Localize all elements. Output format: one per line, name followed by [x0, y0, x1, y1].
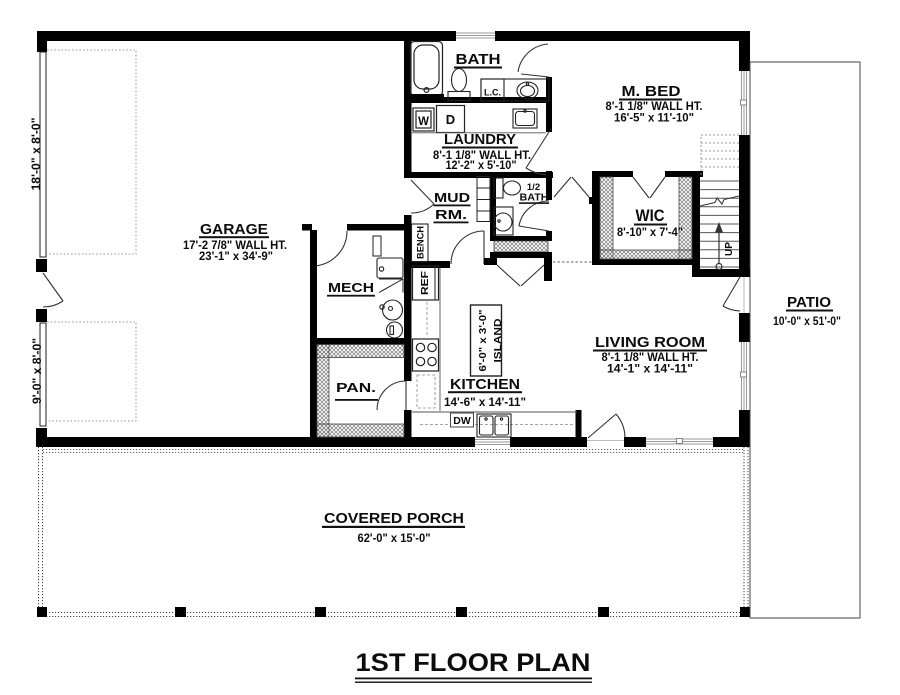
- svg-text:KITCHEN: KITCHEN: [450, 377, 520, 393]
- svg-text:1/2: 1/2: [527, 182, 540, 193]
- svg-text:COVERED PORCH: COVERED PORCH: [324, 511, 464, 527]
- svg-text:UP: UP: [724, 242, 735, 256]
- svg-text:10'-0" x 51'-0": 10'-0" x 51'-0": [773, 316, 841, 328]
- svg-text:BATH: BATH: [456, 52, 501, 68]
- svg-text:REF: REF: [420, 271, 431, 295]
- svg-text:L.C.: L.C.: [484, 88, 501, 99]
- svg-text:LIVING ROOM: LIVING ROOM: [595, 335, 705, 351]
- svg-text:8'-10" x 7'-4": 8'-10" x 7'-4": [617, 227, 683, 239]
- svg-text:LAUNDRY: LAUNDRY: [444, 132, 516, 148]
- svg-text:BENCH: BENCH: [416, 226, 426, 259]
- svg-text:16'-5" x 11'-10": 16'-5" x 11'-10": [614, 113, 694, 125]
- svg-text:MECH: MECH: [328, 280, 374, 295]
- svg-text:14'-1" x 14'-11": 14'-1" x 14'-11": [607, 364, 693, 376]
- svg-text:18'-0" x 8'-0": 18'-0" x 8'-0": [31, 118, 43, 191]
- svg-text:MUD: MUD: [434, 190, 470, 205]
- svg-text:8'-1 1/8" WALL HT.: 8'-1 1/8" WALL HT.: [606, 101, 703, 113]
- svg-text:PAN.: PAN.: [336, 380, 376, 395]
- svg-text:BATH: BATH: [520, 193, 549, 204]
- svg-text:WIC: WIC: [636, 206, 665, 225]
- svg-text:PATIO: PATIO: [787, 295, 831, 311]
- svg-text:6'-0" x 3'-0": 6'-0" x 3'-0": [478, 309, 489, 371]
- svg-text:62'-0" x 15'-0": 62'-0" x 15'-0": [358, 533, 431, 545]
- svg-text:ISLAND: ISLAND: [493, 319, 504, 363]
- svg-text:8'-1 1/8" WALL HT.: 8'-1 1/8" WALL HT.: [602, 352, 699, 364]
- svg-text:9'-0" x 8'-0": 9'-0" x 8'-0": [32, 338, 44, 404]
- svg-text:14'-6" x 14'-11": 14'-6" x 14'-11": [444, 397, 526, 409]
- svg-text:12'-2" x 5'-10": 12'-2" x 5'-10": [446, 160, 517, 172]
- svg-text:GARAGE: GARAGE: [200, 222, 268, 238]
- svg-text:W: W: [418, 116, 429, 128]
- svg-text:1ST FLOOR PLAN: 1ST FLOOR PLAN: [356, 649, 591, 677]
- svg-text:DW: DW: [453, 415, 471, 427]
- svg-text:23'-1" x 34'-9": 23'-1" x 34'-9": [199, 251, 273, 263]
- svg-text:RM.: RM.: [435, 207, 467, 222]
- svg-text:M. BED: M. BED: [622, 84, 681, 100]
- svg-text:D: D: [446, 112, 455, 127]
